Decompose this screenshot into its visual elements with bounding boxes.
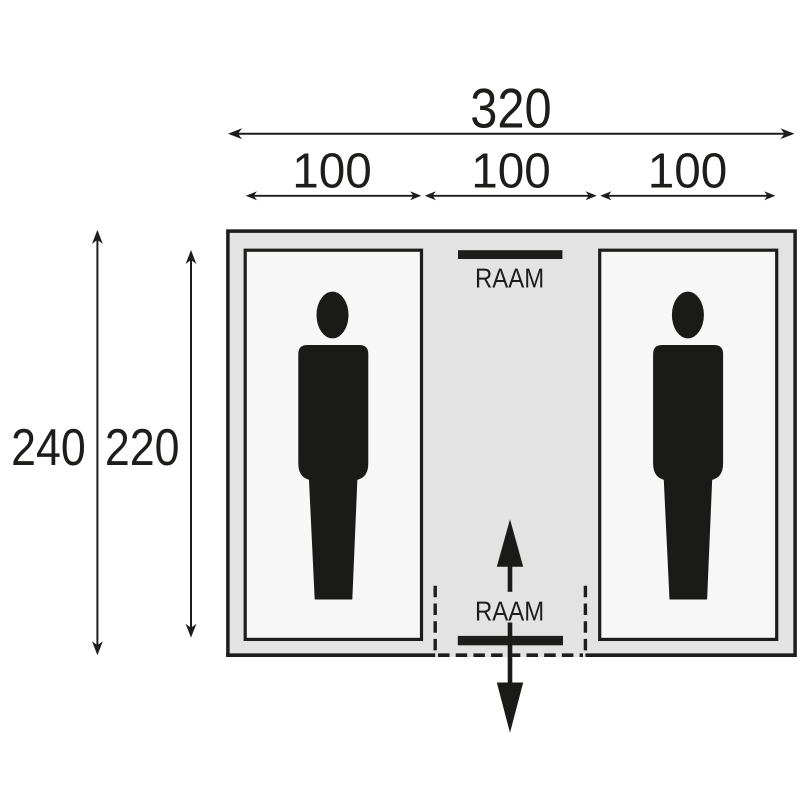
svg-text:220: 220 [105,418,180,476]
svg-text:100: 100 [471,144,551,199]
svg-text:100: 100 [292,144,372,199]
svg-text:320: 320 [470,76,551,139]
svg-text:RAAM: RAAM [475,595,544,626]
svg-text:RAAM: RAAM [475,262,544,293]
svg-text:240: 240 [11,418,86,476]
svg-text:100: 100 [648,144,728,199]
